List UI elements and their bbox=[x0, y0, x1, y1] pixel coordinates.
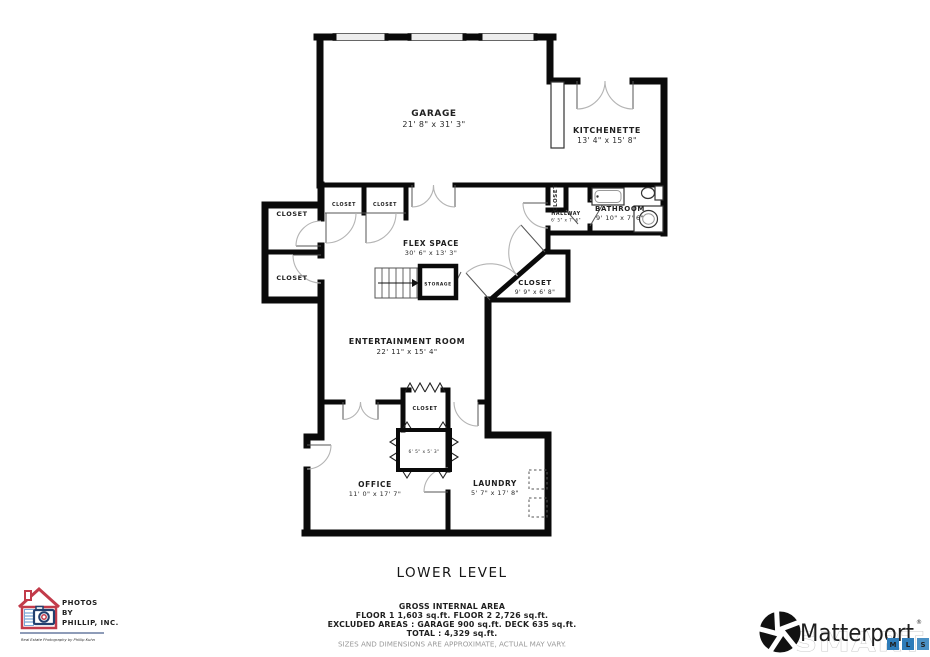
mls-letter-s: S bbox=[920, 641, 925, 649]
room-dims: 6' 5" x 7' 6" bbox=[551, 218, 581, 223]
room-bathroom: BATHROOM 9' 10" x 7' 6" bbox=[595, 205, 645, 222]
room-hall-closet-label: CLOSET bbox=[553, 184, 559, 211]
matterport-logo: SMART Matterport ® M L S bbox=[758, 610, 929, 657]
floorplan-page: GARAGE 21' 8" x 31' 3" KITCHENETTE 13' 4… bbox=[0, 0, 930, 657]
mls-letter-l: L bbox=[906, 641, 911, 649]
room-label: BATHROOM bbox=[595, 205, 645, 213]
kitchen-counter bbox=[551, 82, 564, 148]
room-dims: 11' 0" x 17' 7" bbox=[349, 490, 401, 498]
photographer-line2: BY bbox=[62, 609, 73, 617]
room-top-closet-right-label: CLOSET bbox=[373, 202, 397, 208]
footer-excluded-line: EXCLUDED AREAS : GARAGE 900 sq.ft. DECK … bbox=[328, 620, 577, 629]
photographer-logo: PHOTOS BY PHILLIP, INC. Real Estate Phot… bbox=[19, 589, 119, 642]
toilet-icon bbox=[642, 186, 664, 200]
room-top-closet-left-label: CLOSET bbox=[332, 202, 356, 208]
room-flex-space: FLEX SPACE 30' 6" x 13' 3" bbox=[403, 239, 459, 257]
room-garage: GARAGE 21' 8" x 31' 3" bbox=[402, 109, 465, 129]
room-label: GARAGE bbox=[411, 109, 456, 119]
room-entertainment: ENTERTAINMENT ROOM 22' 11" x 15' 4" bbox=[349, 337, 465, 356]
footer-area-heading: GROSS INTERNAL AREA bbox=[399, 602, 505, 611]
room-left-closet-lower-label: CLOSET bbox=[276, 274, 307, 282]
interior-walls bbox=[265, 185, 664, 533]
matterport-pinwheel-icon bbox=[758, 610, 800, 652]
footer-floors-line: FLOOR 1 1,603 sq.ft. FLOOR 2 2,726 sq.ft… bbox=[356, 611, 548, 620]
window-band bbox=[333, 34, 537, 41]
room-label: LAUNDRY bbox=[473, 479, 517, 488]
room-dims: 13' 4" x 15' 8" bbox=[577, 136, 637, 145]
room-hallway: HALLWAY 6' 5" x 7' 6" bbox=[551, 211, 581, 223]
room-dims: 9' 10" x 7' 6" bbox=[596, 214, 644, 222]
room-laundry: LAUNDRY 5' 7" x 17' 8" bbox=[471, 479, 519, 497]
footer-total-line: TOTAL : 4,329 sq.ft. bbox=[407, 629, 498, 638]
room-label: KITCHENETTE bbox=[573, 126, 641, 135]
bathtub-icon bbox=[592, 188, 624, 205]
room-dims: 21' 8" x 31' 3" bbox=[402, 120, 465, 129]
room-kitchenette: KITCHENETTE 13' 4" x 15' 8" bbox=[573, 126, 641, 145]
photographer-tagline: Real Estate Photography by Phillip Kuhn bbox=[21, 638, 96, 642]
room-label: ENTERTAINMENT ROOM bbox=[349, 337, 465, 346]
mls-letter-m: M bbox=[890, 641, 897, 649]
page-title: LOWER LEVEL bbox=[396, 565, 507, 581]
room-dims: 9' 9" x 6' 8" bbox=[515, 289, 555, 296]
room-angled-closet: CLOSET 9' 9" x 6' 8" bbox=[515, 279, 555, 296]
room-office: OFFICE 11' 0" x 17' 7" bbox=[349, 480, 401, 498]
floorplan-drawing: GARAGE 21' 8" x 31' 3" KITCHENETTE 13' 4… bbox=[0, 0, 930, 657]
room-center-closet-label: CLOSET bbox=[413, 406, 438, 412]
room-left-closet-upper-label: CLOSET bbox=[276, 210, 307, 218]
room-dims: 22' 11" x 15' 4" bbox=[377, 348, 438, 356]
photographer-line3: PHILLIP, INC. bbox=[62, 619, 119, 627]
stairs-icon bbox=[375, 268, 420, 298]
room-dims: 30' 6" x 13' 3" bbox=[405, 249, 457, 257]
photos-by-phillip-house-camera-icon bbox=[19, 589, 59, 628]
mls-squares: M L S bbox=[887, 638, 929, 650]
exterior-walls bbox=[265, 37, 664, 533]
room-label: FLEX SPACE bbox=[403, 239, 459, 248]
room-label: OFFICE bbox=[358, 480, 392, 489]
footer-disclaimer: SIZES AND DIMENSIONS ARE APPROXIMATE, AC… bbox=[338, 640, 566, 649]
washer-dryer-dashed-boxes bbox=[529, 470, 547, 517]
registered-trademark-icon: ® bbox=[916, 619, 922, 626]
room-label: CLOSET bbox=[518, 279, 552, 287]
room-small-room-dims: 6' 5" x 5' 3" bbox=[408, 449, 439, 455]
room-dims: 5' 7" x 17' 8" bbox=[471, 489, 519, 497]
photographer-line1: PHOTOS bbox=[62, 599, 98, 607]
room-storage-label: STORAGE bbox=[424, 282, 451, 288]
